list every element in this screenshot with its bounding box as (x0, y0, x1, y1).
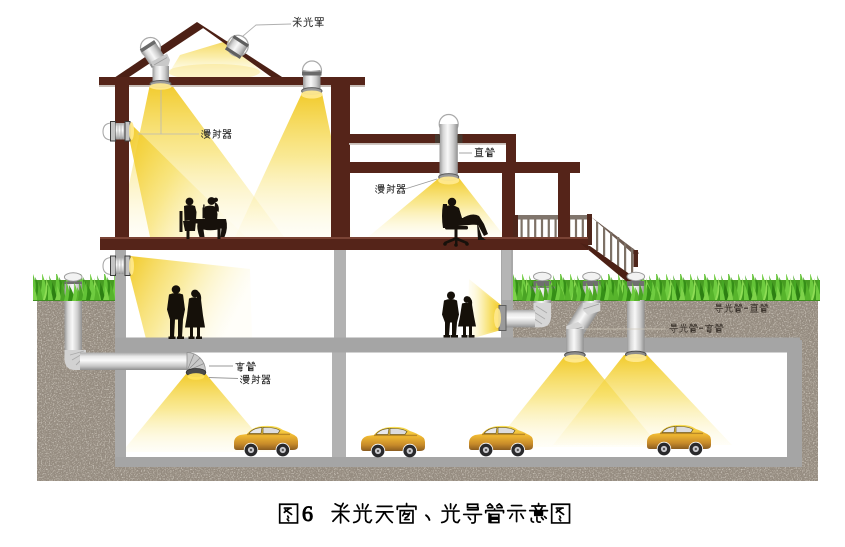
svg-text:6: 6 (302, 501, 313, 526)
